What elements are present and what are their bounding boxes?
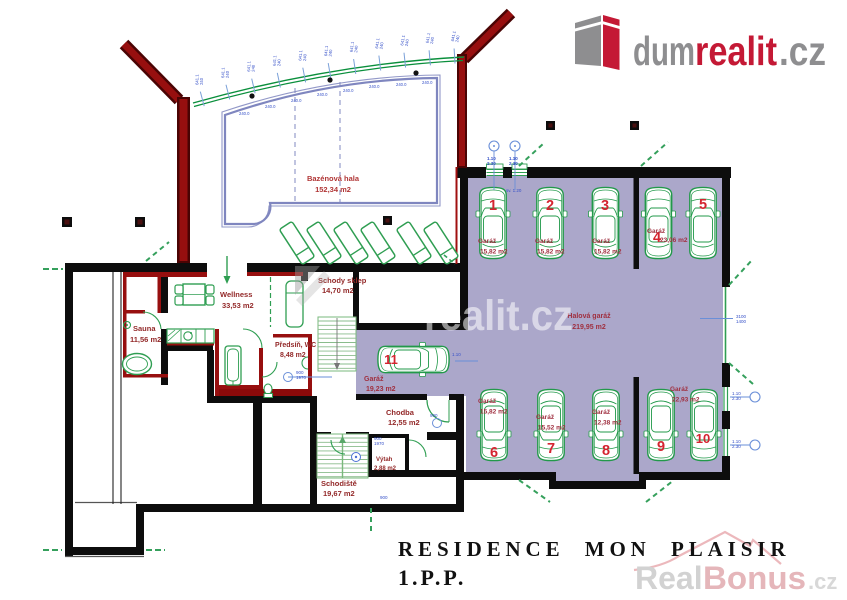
svg-text:1400: 1400 [736, 319, 747, 324]
svg-text:15,82 m2: 15,82 m2 [537, 249, 565, 256]
svg-text:1.10: 1.10 [452, 352, 461, 357]
svg-text:14,70 m2: 14,70 m2 [322, 286, 354, 295]
svg-text:2: 2 [546, 198, 554, 214]
svg-text:240: 240 [302, 53, 308, 61]
svg-text:Garáž: Garáž [670, 386, 689, 393]
svg-text:240: 240 [328, 49, 334, 57]
svg-text:3: 3 [601, 198, 609, 214]
svg-text:152,34 m2: 152,34 m2 [315, 185, 351, 194]
svg-text:10: 10 [696, 431, 710, 446]
svg-text:2.30: 2.30 [487, 161, 496, 166]
svg-text:sv. 1.20: sv. 1.20 [506, 188, 522, 193]
svg-text:realit.cz: realit.cz [424, 292, 573, 340]
svg-text:19,23 m2: 19,23 m2 [366, 386, 396, 393]
svg-text:Bonus: Bonus [703, 560, 806, 596]
svg-text:Garáž: Garáž [536, 414, 555, 421]
svg-text:9: 9 [657, 439, 665, 455]
svg-text:240.0: 240.0 [422, 80, 433, 85]
svg-text:900: 900 [430, 413, 438, 418]
svg-text:240: 240 [199, 77, 204, 85]
svg-text:240: 240 [251, 64, 256, 72]
svg-text:Předsíň, WC: Předsíň, WC [275, 342, 316, 349]
svg-text:15,82 m2: 15,82 m2 [480, 249, 508, 256]
svg-text:8,48 m2: 8,48 m2 [280, 352, 306, 359]
svg-text:23,06 m2: 23,06 m2 [660, 237, 688, 244]
svg-text:1.P.P.: 1.P.P. [398, 565, 466, 590]
svg-text:1970: 1970 [374, 441, 385, 446]
svg-text:2,88 m2: 2,88 m2 [374, 466, 397, 472]
svg-text:19,67 m2: 19,67 m2 [323, 489, 355, 498]
svg-text:dum: dum [633, 28, 695, 74]
svg-text:2.30: 2.30 [509, 161, 518, 166]
svg-text:33,53 m2: 33,53 m2 [222, 301, 254, 310]
svg-text:realit: realit [695, 28, 777, 74]
svg-text:15,82 m2: 15,82 m2 [594, 249, 622, 256]
svg-text:240.0: 240.0 [317, 92, 328, 97]
svg-text:240.0: 240.0 [239, 111, 250, 116]
svg-text:.cz: .cz [779, 28, 826, 74]
svg-text:240.0: 240.0 [343, 88, 354, 93]
svg-text:240: 240 [378, 41, 384, 49]
svg-text:Real: Real [635, 560, 703, 596]
svg-text:219,95 m2: 219,95 m2 [572, 324, 606, 331]
svg-text:15,82 m2: 15,82 m2 [480, 409, 508, 416]
svg-text:6: 6 [490, 445, 498, 461]
svg-text:240.0: 240.0 [291, 98, 302, 103]
svg-text:Schodiště: Schodiště [321, 479, 357, 488]
svg-text:2.30: 2.30 [732, 444, 741, 449]
svg-text:Garáž: Garáž [364, 376, 384, 383]
svg-text:Bazénová hala: Bazénová hala [307, 174, 360, 183]
svg-text:240.0: 240.0 [265, 104, 276, 109]
svg-text:12,55 m2: 12,55 m2 [388, 418, 420, 427]
svg-text:8: 8 [602, 443, 610, 459]
svg-text:Garáž: Garáž [478, 238, 497, 245]
svg-text:22,93 m2: 22,93 m2 [672, 397, 700, 404]
svg-text:240: 240 [276, 58, 281, 66]
svg-text:240: 240 [225, 70, 230, 78]
svg-text:Garáž: Garáž [535, 238, 554, 245]
svg-text:Garáž: Garáž [647, 228, 666, 235]
svg-text:240.0: 240.0 [369, 84, 380, 89]
svg-text:Garáž: Garáž [592, 409, 611, 416]
svg-text:2.30: 2.30 [732, 396, 741, 401]
svg-text:Chodba: Chodba [386, 408, 415, 417]
svg-text:1: 1 [489, 198, 497, 214]
svg-text:RESIDENCE MON PLAISIR: RESIDENCE MON PLAISIR [398, 537, 790, 561]
svg-text:5: 5 [699, 197, 707, 213]
svg-text:Sauna: Sauna [133, 324, 156, 333]
svg-text:Výtah: Výtah [376, 457, 393, 463]
svg-text:.cz: .cz [808, 569, 837, 594]
svg-text:900: 900 [380, 495, 388, 500]
svg-text:Halová garáž: Halová garáž [567, 313, 611, 320]
svg-text:240: 240 [353, 45, 359, 53]
svg-text:Wellness: Wellness [220, 290, 252, 299]
svg-text:12,38 m2: 12,38 m2 [594, 420, 622, 427]
svg-text:1970: 1970 [296, 375, 307, 380]
svg-text:Garáž: Garáž [478, 398, 497, 405]
svg-text:15,52 m2: 15,52 m2 [538, 425, 566, 432]
svg-text:Garáž: Garáž [592, 238, 611, 245]
svg-text:240.0: 240.0 [396, 82, 407, 87]
svg-text:11: 11 [384, 352, 398, 367]
svg-text:7: 7 [547, 441, 555, 457]
svg-text:11,56 m2: 11,56 m2 [130, 335, 161, 344]
